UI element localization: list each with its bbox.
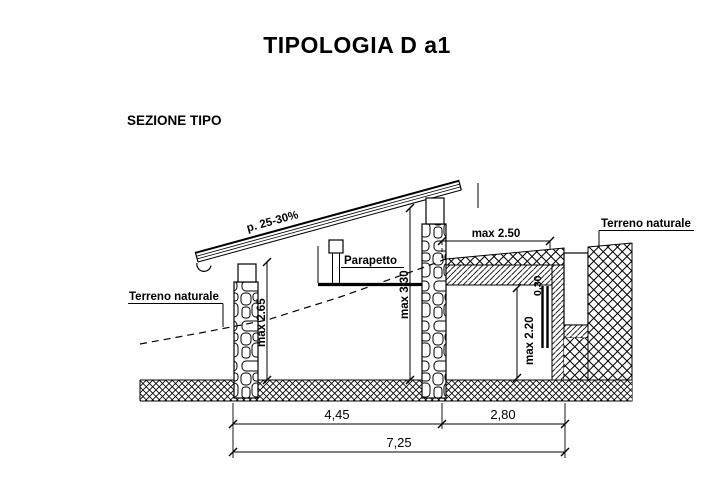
dim-plan-widths: 4,45 2,80 7,25 [229, 403, 569, 458]
dim-span-left: 4,45 [324, 407, 349, 422]
terrace-soil-wedge [446, 248, 564, 265]
dim-ridge-height: max 3.30 [399, 204, 414, 384]
buried-room [446, 243, 632, 401]
page-title: TIPOLOGIA D a1 [263, 32, 451, 58]
terrain-left-label: Terreno naturale [129, 291, 219, 303]
roof-slab [446, 265, 564, 285]
natural-terrain-right [588, 243, 632, 401]
light-well-slab [564, 325, 588, 338]
left-pillar [234, 264, 258, 398]
svg-text:max 2.50: max 2.50 [472, 228, 521, 240]
svg-text:max 2.65: max 2.65 [256, 298, 268, 347]
section-drawing: TIPOLOGIA D a1 SEZIONE TIPO p. 25-30% Pa… [0, 0, 707, 495]
svg-text:max 3.30: max 3.30 [399, 270, 411, 319]
dim-span-total: 7,25 [386, 435, 411, 450]
gutter-icon [197, 263, 211, 271]
light-well [564, 253, 588, 325]
dim-slab-thickness: 0,30 [532, 275, 544, 296]
parapet-label: Parapetto [344, 255, 397, 267]
middle-pillar [422, 198, 446, 398]
svg-text:max 2.20: max 2.20 [524, 316, 536, 365]
dim-room-height: max 2.20 [513, 284, 536, 382]
roof: p. 25-30% [191, 166, 461, 262]
drawing-sheet: TIPOLOGIA D a1 SEZIONE TIPO p. 25-30% Pa… [0, 0, 707, 495]
dim-span-right: 2,80 [490, 407, 515, 422]
ground-band [140, 380, 632, 401]
terrain-right-label: Terreno naturale [601, 218, 691, 230]
section-label: SEZIONE TIPO [127, 113, 222, 128]
